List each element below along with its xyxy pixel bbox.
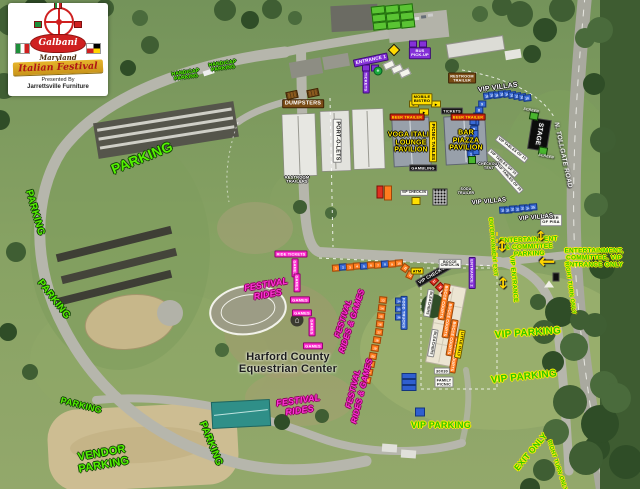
gondola-icon	[34, 21, 42, 28]
vip-villa-10: 10	[523, 94, 531, 102]
n-tollgate-road: N. TOLLGATE ROAD	[553, 122, 574, 189]
games-3: GAMES	[303, 342, 323, 349]
parking-label-main: PARKING	[109, 139, 175, 177]
picnic-tables: PICNIC TABLES	[429, 121, 437, 162]
drink-trailer-3	[412, 197, 421, 205]
arrow-updown-1: ↕	[496, 240, 509, 255]
parking-label-west-3: PARKING	[59, 396, 102, 416]
games-v2: GAMES	[293, 273, 300, 292]
cart-parking-box-8	[387, 20, 402, 29]
parking-label-west-2: PARKING	[34, 278, 71, 322]
bocce-check-in: BOCCE CHECK-IN	[439, 259, 462, 269]
arrow-left-entrance: ←	[539, 251, 556, 271]
vendor-booth-17: 17	[375, 328, 384, 336]
vendor-booth-14: 14	[378, 304, 387, 312]
dumpsters: DUMPSTERS	[282, 99, 324, 108]
restroom-trailers: RESTROOM TRAILERS	[285, 176, 310, 185]
vip-villa-25: 25	[529, 203, 537, 211]
vip-parking-2: VIP PARKING	[490, 369, 557, 387]
vip-parking-3: VIP PARKING	[411, 421, 471, 431]
festival-rides-2: FESTIVAL RIDES	[276, 393, 323, 418]
equestrian-center-name: Harford County Equestrian Center	[239, 352, 337, 376]
handicap-parking-1: HANDICAP PARKING	[171, 69, 200, 84]
tickets-vertical: TICKETS	[362, 71, 369, 94]
vip-check-in-2: VIP CHECK-IN	[400, 190, 428, 196]
festival-title-text: Italian Festival	[18, 61, 98, 75]
atm-sign-icon-1	[388, 44, 401, 57]
vendor-booth-19: 19	[371, 344, 380, 352]
voga-italia-pavilion: VOGA ITALIA LOUNGE PAVILION	[388, 132, 435, 155]
exit-only: EXIT ONLY	[513, 431, 550, 472]
games-v3: GAMES	[308, 317, 315, 336]
ent-committee-vip-entrance: ENTERTAINMENT, COMMITTEE, VIP ENTRANCE O…	[564, 247, 623, 268]
vendor-booth-13: 13	[379, 296, 388, 304]
games-1: GAMES	[290, 296, 310, 303]
beer-trailer-1: BEER TRAILER	[390, 113, 425, 120]
port-o-lets: PORT-O-LETS	[332, 119, 341, 163]
stage: STAGE	[534, 122, 545, 146]
info-board-icon-1	[433, 189, 448, 206]
vip-villas-bottom: VIP VILLAS	[471, 197, 506, 206]
vendor-parking-label: VENDOR PARKING	[76, 444, 131, 476]
atm-box: ATM	[411, 267, 424, 274]
bleachers-2: BLEACHERS	[427, 329, 438, 357]
gambling: GAMBLING	[409, 164, 437, 171]
cart-parking-box-7	[373, 21, 388, 30]
presented-by-text: Presented By	[8, 77, 108, 83]
festival-rides-1: FESTIVAL RIDES	[243, 277, 290, 304]
beer-trailer-2: BEER TRAILER	[451, 113, 486, 120]
family-picnic: FAMILY PICNIC	[434, 376, 453, 387]
vendor-booth-15: 15	[377, 312, 386, 320]
festival-rides-games-1: FESTIVAL RIDES & GAMES	[330, 286, 367, 355]
soda-trailer: SODA TRAILER	[458, 188, 475, 196]
bar-piazza-pavilion: BAR PIAZZA PAVILION	[449, 130, 483, 153]
bus-pick-up: BUS PICK-UP	[409, 47, 431, 59]
games-2: GAMES	[292, 309, 312, 316]
italian-flag-icon	[54, 3, 62, 9]
cart-parking-box-9	[401, 19, 416, 28]
parking-label-south: PARKING	[196, 420, 224, 467]
drink-trailer-1	[384, 186, 392, 201]
arrow-updown-2: ↕	[497, 277, 510, 292]
road-sign-icon-1	[553, 273, 560, 282]
food-trucks-vert: FOOD TRUCKS	[400, 296, 407, 330]
arrow-updown-3: ↕	[536, 231, 547, 244]
handicap-parking-2: HANDICAP PARKING	[208, 60, 237, 75]
festival-title-ribbon: Italian Festival	[13, 59, 103, 75]
ferris-wheel-icon	[44, 7, 74, 37]
checkout-tent: CHECKOUT TENT	[478, 163, 499, 171]
picnic-tent-icon-1	[544, 281, 554, 288]
galbani-brand-text: Galbani	[38, 38, 77, 48]
vendor-booth-18: 18	[373, 336, 382, 344]
festival-logo-card: Galbani Maryland Italian Festival Presen…	[8, 3, 108, 96]
entrance-2: ENTRANCE 2	[468, 257, 475, 289]
beverage-bar-3	[402, 385, 417, 391]
right-turn-only-exit: RIGHT TURN ONLY	[545, 440, 567, 489]
drink-trailer-2	[377, 186, 384, 199]
size-30x30: 30X30	[434, 367, 450, 374]
gondola-icon	[74, 21, 82, 28]
dumpster-icon-2	[306, 88, 319, 98]
vendor-booth-16: 16	[376, 320, 385, 328]
parking-label-west-1: PARKING	[22, 189, 45, 237]
galbani-brand: Galbani	[30, 34, 86, 53]
mobile-bistro: MOBILE BISTRO	[411, 93, 432, 105]
presenter-name-text: Jarrettsville Furniture	[8, 84, 108, 90]
beverage-bar-4	[415, 408, 425, 417]
ride-tickets: RIDE TICKETS	[274, 250, 307, 257]
right-turn-only-road: RIGHT TURN ONLY	[562, 261, 575, 315]
first-aid-icon-+: +	[374, 67, 383, 76]
screen-label-2: SCREEN	[538, 154, 554, 160]
festival-rides-games-2: FESTIVAL RIDES & GAMES	[342, 356, 375, 425]
restroom-trailer: RESTROOM TRAILER	[448, 72, 476, 83]
bleachers-1: BLEACHERS	[423, 289, 434, 317]
vip-parking-1: VIP PARKING	[495, 326, 562, 341]
pavilion-side-box-4	[468, 156, 476, 164]
direction-box-▶: ▶	[431, 101, 441, 108]
festival-map: HANDICAP PARKINGHANDICAP PARKINGPARKINGP…	[0, 0, 640, 489]
